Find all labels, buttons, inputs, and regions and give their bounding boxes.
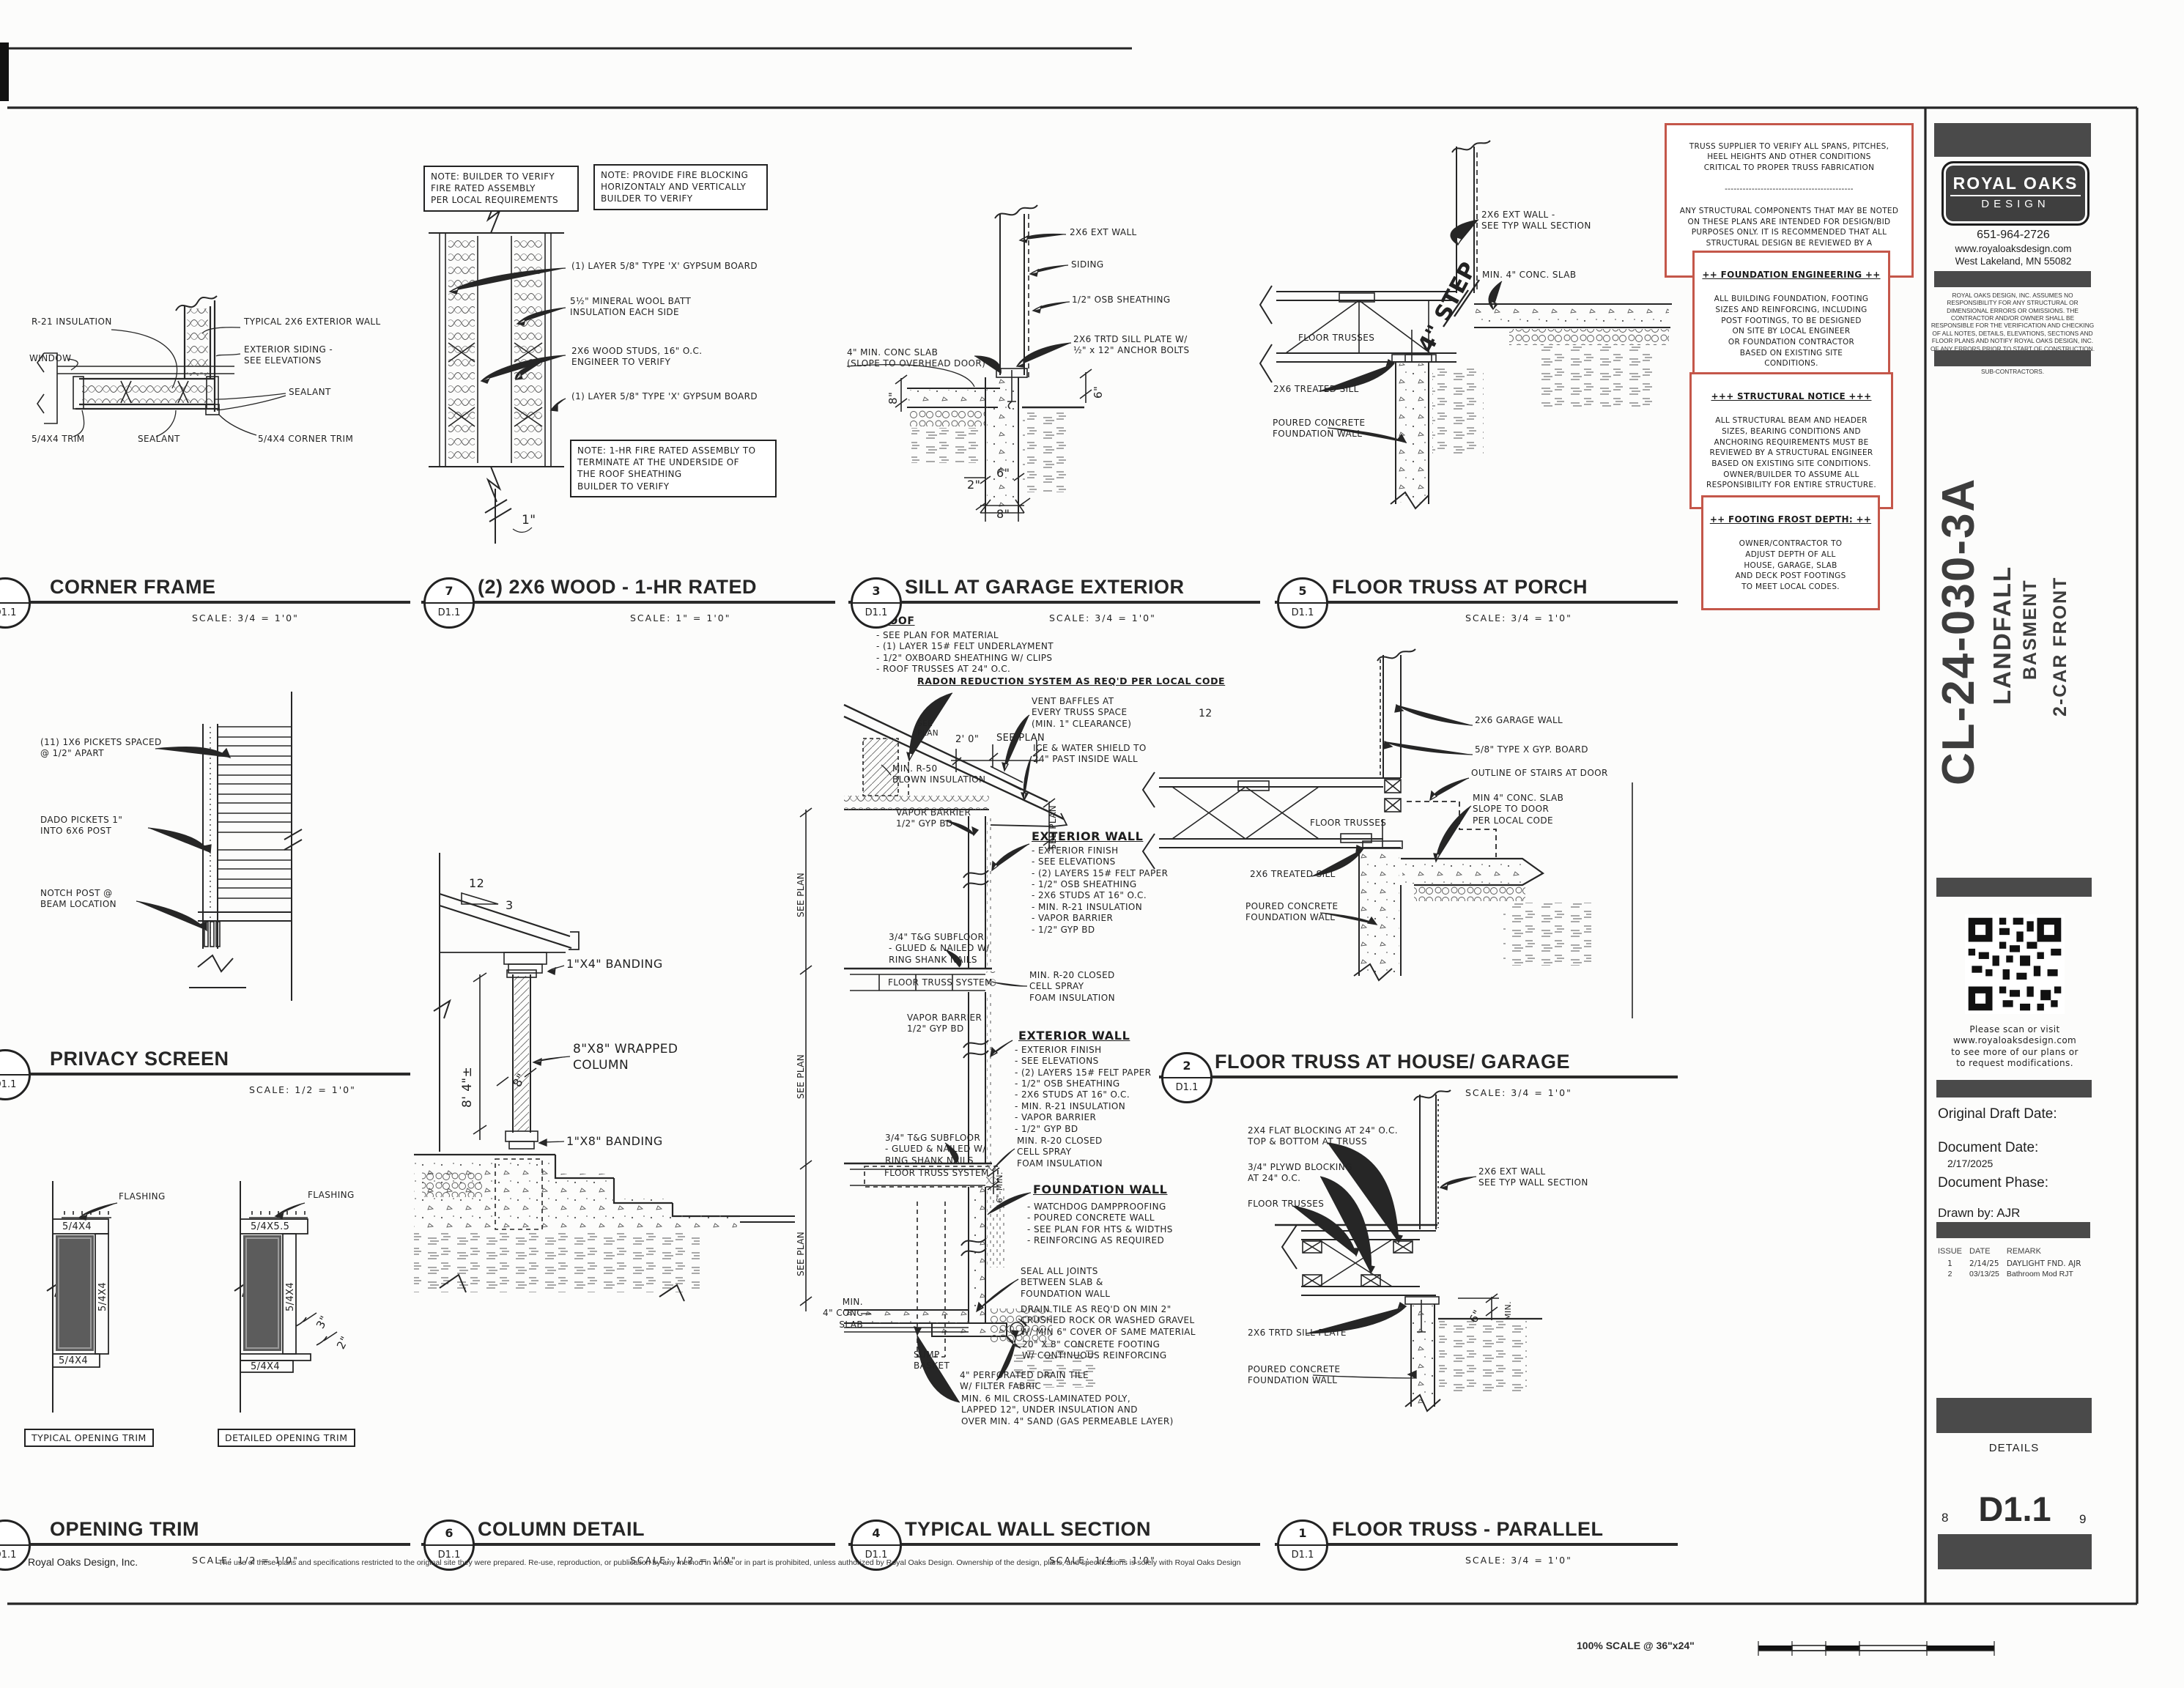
- label: 5/4X4 TRIM: [32, 434, 85, 445]
- label: (1) LAYER 5/8" TYPE 'X' GYPSUM BOARD: [571, 391, 758, 402]
- graphic-scale-bar: [1758, 1641, 1994, 1656]
- label: EXTERIOR SIDING - SEE ELEVATIONS: [244, 344, 333, 367]
- document-date-value: 2/17/2025: [1947, 1158, 1993, 1169]
- label: 3/4" PLYWD BLOCKING AT 24" O.C.: [1248, 1162, 1352, 1185]
- titleblock-bar: [1934, 350, 2091, 366]
- label: 1"X4" BANDING: [566, 957, 663, 971]
- label: MIN. R-50 BLOWN INSULATION: [892, 763, 985, 786]
- note-box: NOTE: PROVIDE FIRE BLOCKING HORIZONTALY …: [593, 164, 768, 210]
- foundation-engineering-notice: ++ FOUNDATION ENGINEERING ++ ALL BUILDIN…: [1692, 251, 1890, 388]
- titleblock-bar: [1936, 1080, 2092, 1097]
- issue-table: ISSUE DATE REMARK 1 2/14/25 DAYLIGHT FND…: [1938, 1245, 2089, 1279]
- label: TYPICAL 2X6 EXTERIOR WALL: [244, 316, 381, 327]
- label: 5/4X4: [59, 1355, 88, 1368]
- label: - SEE PLAN FOR MATERIAL - (1) LAYER 15# …: [876, 630, 1054, 675]
- title-rule: [848, 601, 1260, 604]
- truss-house-garage-linework: [1143, 649, 1632, 1018]
- title-rule: [0, 601, 410, 604]
- note-box: NOTE: BUILDER TO VERIFY FIRE RATED ASSEM…: [423, 166, 579, 212]
- label: 4" MIN. CONC SLAB (SLOPE TO OVERHEAD DOO…: [847, 347, 985, 370]
- document-date-label: Document Date:: [1938, 1140, 2038, 1156]
- frost-notice-body: OWNER/CONTRACTOR TO ADJUST DEPTH OF ALL …: [1708, 538, 1873, 592]
- label: VAPOR BARRIER 1/2" GYP BD: [896, 807, 971, 830]
- label: 5/4X4: [97, 1282, 110, 1311]
- label: 2X6 TRTD SILL PLATE: [1248, 1328, 1347, 1339]
- dimension: 6": [1092, 386, 1106, 399]
- label: MIN. R-20 CLOSED CELL SPRAY FOAM INSULAT…: [1029, 970, 1115, 1004]
- issue-row: 1 2/14/25 DAYLIGHT FND. AJR: [1938, 1259, 2089, 1269]
- titleblock-bar: [1938, 1534, 2092, 1569]
- firm-name: Royal Oaks Design, Inc.: [28, 1556, 138, 1568]
- sheet-project-vertical: LANDFALL: [1988, 566, 2016, 705]
- label: SEALANT: [138, 434, 180, 445]
- label: 2X6 GARAGE WALL: [1475, 715, 1563, 726]
- caption-box: TYPICAL OPENING TRIM: [24, 1429, 154, 1447]
- sheet-variant-vertical: BASMENT: [2020, 579, 2041, 680]
- copyright-text: The use of these plans and specification…: [218, 1558, 1544, 1567]
- dimension: 1": [522, 513, 536, 529]
- truss-notice-top: TRUSS SUPPLIER TO VERIFY ALL SPANS, PITC…: [1671, 141, 1907, 174]
- label: 4" PERFORATED DRAIN TILE W/ FILTER FABRI…: [960, 1370, 1089, 1393]
- label: SIDING: [1071, 259, 1104, 270]
- dimension: 12: [469, 876, 484, 891]
- label: FLOOR TRUSSES: [1310, 818, 1386, 829]
- dimension: 2' 0": [955, 734, 979, 747]
- qr-caption: Please scan or visit www.royaloaksdesign…: [1934, 1024, 2095, 1069]
- label: FLASHING: [119, 1191, 166, 1202]
- detail-title-truss-house-garage: FLOOR TRUSS AT HOUSE/ GARAGE: [1215, 1051, 1570, 1073]
- label: - EXTERIOR FINISH - SEE ELEVATIONS - (2)…: [1032, 845, 1168, 936]
- label: MIN. R-20 CLOSED CELL SPRAY FOAM INSULAT…: [1017, 1136, 1103, 1169]
- titleblock-bar: [1936, 1222, 2090, 1238]
- detail-scale: SCALE: 1/2 = 1'0": [249, 1084, 356, 1095]
- label: POURED CONCRETE FOUNDATION WALL: [1245, 901, 1338, 924]
- label: VENT BAFFLES AT EVERY TRUSS SPACE (MIN. …: [1032, 696, 1131, 730]
- page-number-left: 8: [1941, 1511, 1948, 1525]
- qr-code: [1965, 914, 2065, 1014]
- label: ICE & WATER SHIELD TO 24" PAST INSIDE WA…: [1033, 743, 1147, 766]
- label: FLOOR TRUSS SYSTEM: [884, 1168, 989, 1179]
- sheet-front-vertical: 2-CAR FRONT: [2050, 577, 2071, 717]
- label: 5/4X4: [62, 1221, 92, 1234]
- label: FLOOR TRUSS SYSTEM: [888, 977, 993, 988]
- issue-table-header: ISSUE DATE REMARK: [1938, 1245, 2089, 1259]
- detail-title-opening-trim: OPENING TRIM: [50, 1518, 199, 1541]
- detail-scale: SCALE: 3/4 = 1'0": [1465, 612, 1572, 623]
- label: 2X6 TREATED SILL: [1273, 384, 1359, 395]
- label: NOTCH POST @ BEAM LOCATION: [40, 888, 116, 911]
- company-logo: ROYAL OAKS DESIGN: [1941, 161, 2089, 226]
- detail-title-sill-garage: SILL AT GARAGE EXTERIOR: [905, 576, 1185, 599]
- label: 2X6 TREATED SILL: [1250, 869, 1336, 880]
- caption-box: DETAILED OPENING TRIM: [218, 1429, 355, 1447]
- label: SEALANT: [289, 387, 331, 398]
- page-number-right: 9: [2079, 1512, 2086, 1527]
- label: R-21 INSULATION: [32, 316, 112, 327]
- detail-badge-2x6-wood: 7D1.1: [423, 577, 475, 629]
- truss-notice-divider: ----------------------------------------…: [1671, 184, 1907, 195]
- titleblock-bar: [1934, 123, 2091, 157]
- detail-title-column-detail: COLUMN DETAIL: [478, 1518, 645, 1541]
- label: FLASHING: [308, 1190, 355, 1201]
- label: 2X6 EXT WALL SEE TYP WALL SECTION: [1478, 1166, 1588, 1189]
- dimension: 8' 4"±: [460, 1067, 476, 1108]
- detail-scale: SCALE: 3/4 = 1'0": [1465, 1087, 1572, 1098]
- wood-1hr-linework: [429, 198, 566, 544]
- detail-title-truss-porch: FLOOR TRUSS AT PORCH: [1332, 576, 1588, 599]
- label: 3/4" T&G SUBFLOOR - GLUED & NAILED W/ RI…: [885, 1133, 986, 1166]
- dimension: 6": [996, 466, 1010, 481]
- label: (11) 1X6 PICKETS SPACED @ 1/2" APART: [40, 737, 162, 760]
- label: OUTLINE OF STAIRS AT DOOR: [1471, 768, 1608, 779]
- issue-row: 2 03/13/25 Bathroom Mod RJT: [1938, 1269, 2089, 1279]
- label: - EXTERIOR FINISH - SEE ELEVATIONS - (2)…: [1015, 1045, 1151, 1135]
- dimension: 8": [996, 507, 1010, 522]
- sheet-number: D1.1: [1969, 1489, 2060, 1529]
- detail-scale: SCALE: 3/4 = 1'0": [192, 612, 299, 623]
- title-rule: [0, 1543, 410, 1546]
- detail-title-privacy-screen: PRIVACY SCREEN: [50, 1048, 229, 1070]
- dimension: 12: [1199, 708, 1213, 721]
- label: 2X6 WOOD STUDS, 16" O.C. ENGINEER TO VER…: [571, 346, 703, 369]
- original-draft-date-label: Original Draft Date:: [1938, 1106, 2057, 1122]
- sheet-id-vertical: CL-24-030-3A: [1933, 478, 1985, 785]
- label: 5½" MINERAL WOOL BATT INSULATION EACH SI…: [570, 296, 691, 319]
- dimension: MIN.: [1503, 1301, 1514, 1320]
- label: POURED CONCRETE FOUNDATION WALL: [1273, 418, 1365, 440]
- label: 1"X8" BANDING: [566, 1134, 663, 1149]
- label: 5/4X5.5: [251, 1221, 289, 1234]
- detail-badge-opening-trim: D1.1: [0, 1519, 31, 1571]
- dimension: SEE PLAN: [796, 1232, 807, 1276]
- label: DRAIN TILE AS REQ'D ON MIN 2" CRUSHED RO…: [1021, 1304, 1196, 1338]
- dimension: SEE PLAN: [796, 873, 807, 917]
- label: POURED CONCRETE FOUNDATION WALL: [1248, 1364, 1340, 1387]
- detail-title-corner-frame: CORNER FRAME: [50, 576, 216, 599]
- dimension: 2": [967, 478, 980, 492]
- section-header: FOUNDATION WALL: [1033, 1182, 1167, 1196]
- truss-porch-linework: [1260, 141, 1672, 508]
- detail-title-truss-parallel: FLOOR TRUSS - PARALLEL: [1332, 1518, 1603, 1541]
- detail-title-wall-section: TYPICAL WALL SECTION: [905, 1518, 1151, 1541]
- structural-notice-title: +++ STRUCTURAL NOTICE +++: [1696, 390, 1887, 403]
- label: 2X6 TRTD SILL PLATE W/ ½" x 12" ANCHOR B…: [1073, 334, 1190, 357]
- frost-notice-title: ++ FOOTING FROST DEPTH: ++: [1708, 514, 1873, 526]
- section-header: EXTERIOR WALL: [1032, 829, 1143, 843]
- detail-badge-corner-frame: D1.1: [0, 577, 31, 629]
- label: FLOOR TRUSSES: [1298, 333, 1374, 344]
- label: MIN. 4" CONC. SLAB: [1482, 270, 1577, 281]
- title-rule: [421, 1543, 835, 1546]
- title-rule: [421, 601, 835, 604]
- label: 5/4X4: [285, 1282, 297, 1311]
- dimension: SEE PLAN: [796, 1054, 807, 1099]
- label: MIN 4" CONC. SLAB SLOPE TO DOOR PER LOCA…: [1473, 793, 1563, 826]
- company-website: www.royaloaksdesign.com: [1940, 243, 2087, 254]
- label: 5/4X4 CORNER TRIM: [258, 434, 353, 445]
- dimension: 6" MIN.: [995, 1171, 1005, 1203]
- detail-badge-truss-porch: 5D1.1: [1277, 577, 1328, 629]
- print-scale-note: 100% SCALE @ 36"x24": [1577, 1640, 1695, 1651]
- label: SEE PLAN: [917, 719, 939, 739]
- detail-scale: SCALE: 3/4 = 1'0": [1049, 612, 1156, 623]
- company-address: West Lakeland, MN 55082: [1940, 256, 2087, 267]
- titleblock-bar: [1936, 1398, 2092, 1433]
- label: - WATCHDOG DAMPPROOFING - POURED CONCRET…: [1027, 1202, 1173, 1246]
- title-rule: [848, 1543, 1260, 1546]
- label: 2X4 FLAT BLOCKING AT 24" O.C. TOP & BOTT…: [1248, 1125, 1398, 1148]
- dimension: 3: [506, 898, 514, 913]
- structural-notice: +++ STRUCTURAL NOTICE +++ ALL STRUCTURAL…: [1689, 372, 1893, 509]
- drawn-by: Drawn by: AJR: [1938, 1206, 2020, 1221]
- sheet-title: DETAILS: [1936, 1442, 2092, 1454]
- note-box: NOTE: 1-HR FIRE RATED ASSEMBLY TO TERMIN…: [570, 440, 777, 497]
- label: FLOOR TRUSSES: [1248, 1199, 1324, 1210]
- title-rule: [1159, 1076, 1678, 1078]
- label: DADO PICKETS 1" INTO 6X6 POST: [40, 815, 122, 837]
- title-rule: [1275, 1543, 1678, 1546]
- detail-title-2x6-wood: (2) 2X6 WOOD - 1-HR RATED: [478, 576, 757, 599]
- label: 5/8" TYPE X GYP. BOARD: [1475, 744, 1588, 755]
- title-rule: [1275, 601, 1678, 604]
- document-phase-label: Document Phase:: [1938, 1175, 2048, 1191]
- label: VAPOR BARRIER 1/2" GYP BD: [907, 1013, 982, 1035]
- label: MIN. 6 MIL CROSS-LAMINATED POLY, LAPPED …: [961, 1393, 1174, 1427]
- label: SEAL ALL JOINTS BETWEEN SLAB & FOUNDATIO…: [1021, 1266, 1110, 1300]
- label: (1) LAYER 5/8" TYPE 'X' GYPSUM BOARD: [571, 261, 758, 272]
- label: 8"X8" WRAPPED COLUMN: [573, 1042, 678, 1074]
- titleblock-bar: [1936, 878, 2092, 897]
- label: 2X6 EXT WALL: [1070, 227, 1137, 238]
- detail-badge-truss-house-garage: 2D1.1: [1161, 1052, 1213, 1103]
- section-header: RADON REDUCTION SYSTEM AS REQ'D PER LOCA…: [917, 675, 1225, 686]
- label: 5/4X4: [251, 1361, 280, 1374]
- label: 1/2" OSB SHEATHING: [1072, 295, 1171, 306]
- foundation-notice-title: ++ FOUNDATION ENGINEERING ++: [1699, 269, 1884, 281]
- structural-notice-body: ALL STRUCTURAL BEAM AND HEADER SIZES, BE…: [1696, 415, 1887, 491]
- label: MIN. 4" CONC SLAB: [797, 1297, 863, 1330]
- section-header: EXTERIOR WALL: [1018, 1029, 1130, 1043]
- label: 2X6 EXT WALL - SEE TYP WALL SECTION: [1481, 210, 1591, 232]
- frost-depth-notice: ++ FOOTING FROST DEPTH: ++ OWNER/CONTRAC…: [1701, 495, 1880, 610]
- detail-scale: SCALE: 1" = 1'0": [630, 612, 730, 623]
- drawing-sheet: { "sheet": { "id": "CL-24-030-3A", "proj…: [0, 0, 2184, 1688]
- titleblock-bar: [1934, 271, 2091, 287]
- detail-badge-sill-garage: 3D1.1: [851, 577, 902, 629]
- foundation-notice-body: ALL BUILDING FOUNDATION, FOOTING SIZES A…: [1699, 294, 1884, 369]
- dimension: 8": [886, 392, 900, 404]
- detail-badge-privacy-screen: D1.1: [0, 1049, 31, 1100]
- title-rule: [0, 1073, 410, 1076]
- label: SUMP BASKET: [914, 1350, 950, 1372]
- label: 3/4" T&G SUBFLOOR - GLUED & NAILED W/ RI…: [889, 932, 990, 966]
- label: 20" X 8" CONCRETE FOOTING W/ CONTINUOUS …: [1022, 1339, 1167, 1362]
- label: WINDOW: [29, 353, 71, 364]
- company-phone: 651-964-2726: [1940, 229, 2087, 242]
